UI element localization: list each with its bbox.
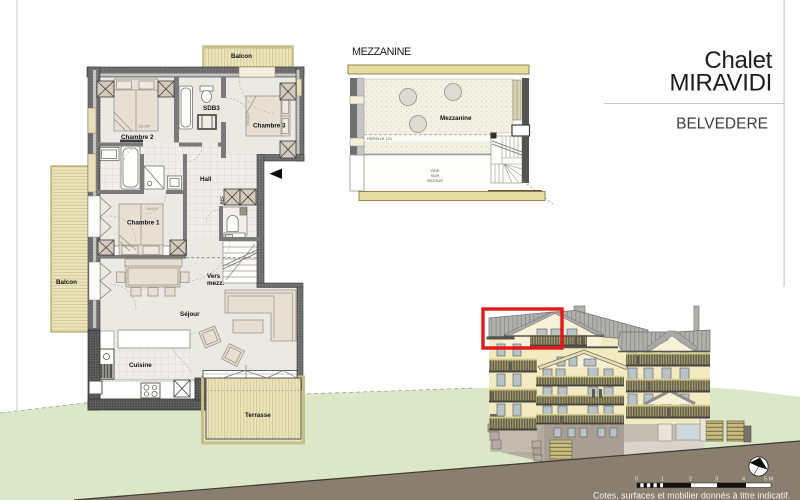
svg-text:2: 2 bbox=[689, 477, 692, 483]
svg-text:HSP/N.Ht 121: HSP/N.Ht 121 bbox=[367, 136, 393, 141]
svg-text:SEJOUR: SEJOUR bbox=[427, 178, 443, 183]
svg-text:MEZZANINE: MEZZANINE bbox=[352, 46, 411, 58]
svg-text:4: 4 bbox=[742, 477, 745, 483]
svg-text:Cotes, surfaces et mobilier do: Cotes, surfaces et mobilier donnés à tit… bbox=[593, 491, 790, 500]
svg-text:REF: REF bbox=[220, 196, 225, 205]
svg-text:Terrasse: Terrasse bbox=[245, 412, 271, 419]
svg-text:5 M: 5 M bbox=[764, 477, 774, 483]
svg-text:Balcon: Balcon bbox=[56, 279, 77, 286]
svg-text:Mezzanine: Mezzanine bbox=[440, 115, 472, 122]
svg-text:3: 3 bbox=[715, 477, 718, 483]
svg-text:MIRAVIDI: MIRAVIDI bbox=[670, 70, 773, 97]
svg-text:Séjour: Séjour bbox=[180, 311, 200, 318]
svg-text:Vers: Vers bbox=[207, 273, 221, 280]
svg-text:Balcon: Balcon bbox=[231, 53, 252, 60]
svg-text:Chambre 1: Chambre 1 bbox=[127, 220, 160, 227]
svg-text:Chambre 2: Chambre 2 bbox=[121, 134, 154, 141]
svg-text:160x200: 160x200 bbox=[146, 207, 158, 211]
svg-text:1: 1 bbox=[661, 477, 664, 483]
svg-text:Hall: Hall bbox=[200, 176, 212, 183]
svg-text:0: 0 bbox=[635, 477, 638, 483]
svg-text:Chambre 3: Chambre 3 bbox=[253, 123, 286, 130]
svg-text:BELVEDERE: BELVEDERE bbox=[676, 116, 768, 133]
svg-text:mezz.: mezz. bbox=[207, 280, 224, 287]
svg-text:160x200: 160x200 bbox=[138, 125, 150, 129]
svg-text:Cuisine: Cuisine bbox=[129, 362, 152, 369]
svg-text:SDB3: SDB3 bbox=[203, 105, 220, 112]
